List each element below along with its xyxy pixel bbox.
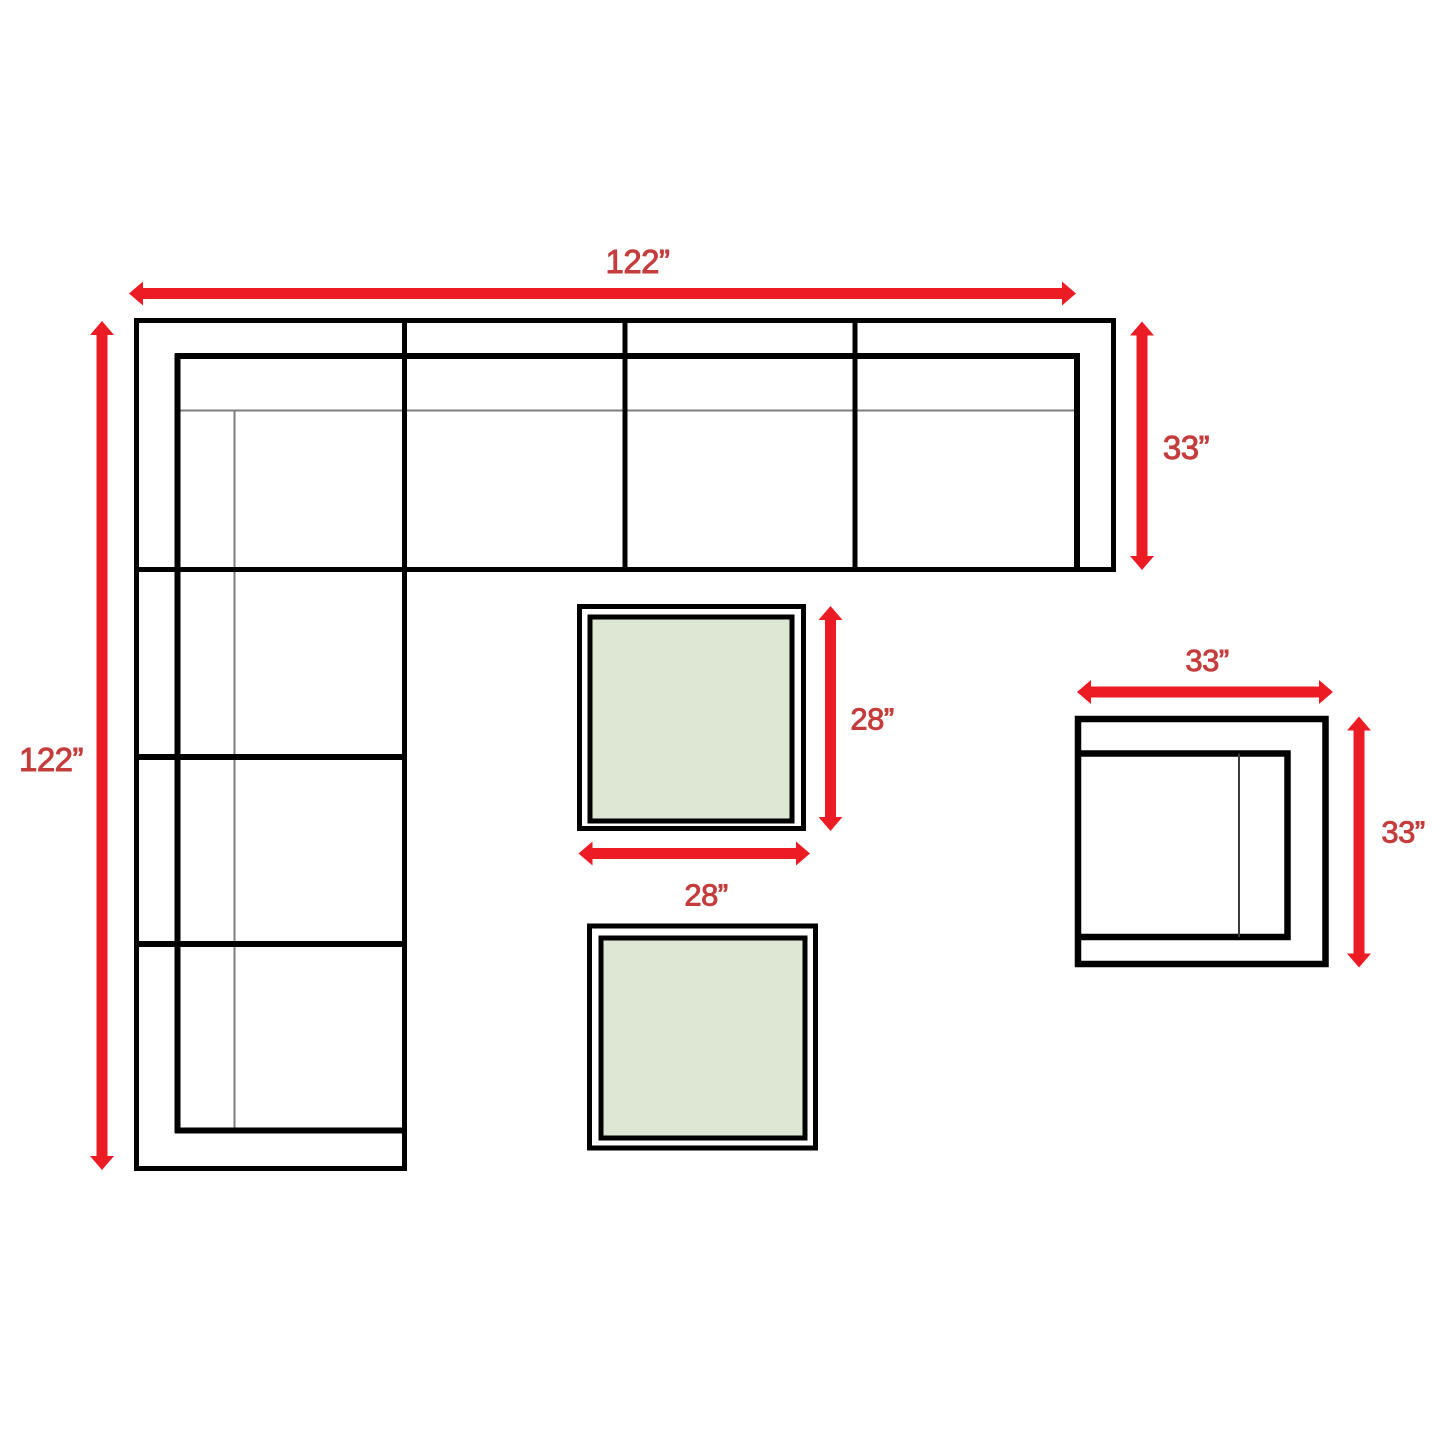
svg-text:122”: 122” [605,243,669,280]
svg-text:33”: 33” [1185,643,1228,678]
svg-text:122”: 122” [19,741,83,778]
svg-text:33”: 33” [1163,429,1209,466]
svg-text:28”: 28” [684,878,727,913]
svg-text:28”: 28” [850,702,893,737]
svg-text:33”: 33” [1381,815,1424,850]
